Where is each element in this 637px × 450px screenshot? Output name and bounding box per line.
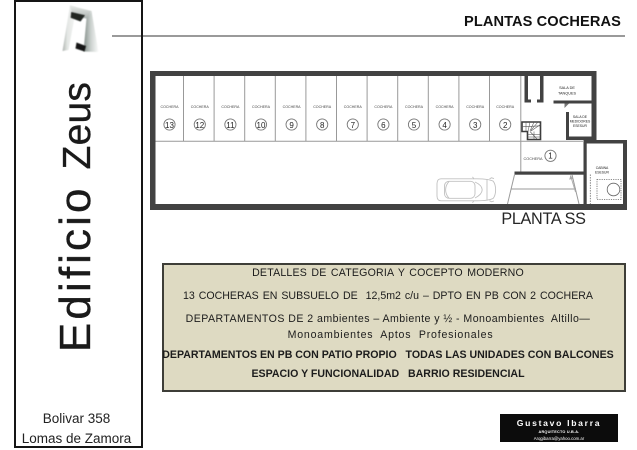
svg-text:SALA DE: SALA DE <box>559 86 575 90</box>
svg-text:COCHERA: COCHERA <box>344 105 363 109</box>
svg-text:TANQUES: TANQUES <box>558 92 577 96</box>
svg-text:COCHERA: COCHERA <box>374 105 393 109</box>
svg-text:13: 13 <box>165 121 174 130</box>
svg-text:MEDIDORES: MEDIDORES <box>570 120 591 124</box>
svg-text:COCHERA: COCHERA <box>191 105 210 109</box>
svg-text:11: 11 <box>226 121 235 130</box>
svg-text:3: 3 <box>473 121 478 130</box>
svg-text:8: 8 <box>320 121 325 130</box>
svg-text:10: 10 <box>257 121 266 130</box>
svg-text:1: 1 <box>548 152 553 161</box>
svg-text:COCHERA: COCHERA <box>496 105 515 109</box>
svg-text:6: 6 <box>381 121 386 130</box>
svg-text:ESESUR: ESESUR <box>573 124 587 128</box>
svg-text:5: 5 <box>412 121 417 130</box>
svg-text:2: 2 <box>503 121 508 130</box>
svg-text:4: 4 <box>442 121 447 130</box>
svg-text:ESESUR: ESESUR <box>595 171 609 175</box>
svg-text:COCHERA: COCHERA <box>313 105 332 109</box>
svg-text:COCHERA: COCHERA <box>436 105 455 109</box>
svg-text:PLANTA SS: PLANTA SS <box>501 210 586 228</box>
svg-text:COCHERA: COCHERA <box>161 105 180 109</box>
svg-text:COCHERA: COCHERA <box>466 105 485 109</box>
svg-text:COCHERA: COCHERA <box>252 105 271 109</box>
svg-text:CABINA: CABINA <box>596 166 609 170</box>
svg-text:COCHERA: COCHERA <box>405 105 424 109</box>
svg-text:COCHERA: COCHERA <box>221 105 240 109</box>
svg-text:7: 7 <box>351 121 356 130</box>
svg-text:SALA DE: SALA DE <box>573 115 588 119</box>
svg-text:COCHERA: COCHERA <box>524 157 543 161</box>
svg-text:COCHERA: COCHERA <box>283 105 302 109</box>
svg-text:12: 12 <box>195 121 204 130</box>
svg-text:9: 9 <box>289 121 294 130</box>
